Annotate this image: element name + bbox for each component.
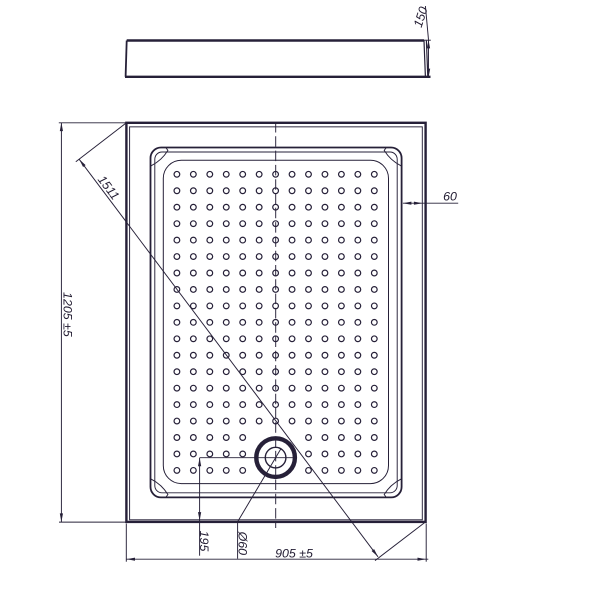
svg-text:905 ±5: 905 ±5 [275, 546, 313, 560]
svg-text:1205 ±5: 1205 ±5 [61, 292, 75, 337]
svg-text:Ø60: Ø60 [236, 531, 250, 556]
svg-text:195: 195 [197, 531, 211, 552]
svg-text:60: 60 [443, 189, 457, 203]
